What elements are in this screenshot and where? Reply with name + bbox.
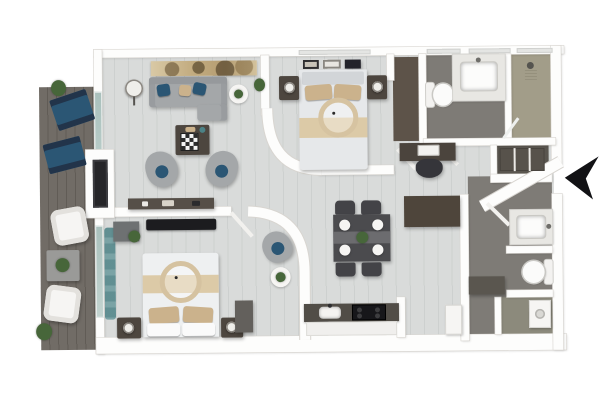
chessboard-icon <box>181 134 197 150</box>
entry-storage-closet <box>469 276 505 294</box>
balcony-armchair-2 <box>43 284 82 324</box>
balcony-table-plant-icon <box>55 258 69 272</box>
dining-centerpiece-plant-icon <box>356 231 368 243</box>
panoramic-wall-art <box>151 60 257 76</box>
plate-icon <box>372 244 383 255</box>
closet2-shelving-unit <box>500 148 545 171</box>
side-table-plant-icon <box>234 89 243 98</box>
bedroom2-nightstand-left <box>117 317 141 338</box>
bedroom2-dresser-left <box>113 221 139 241</box>
master-bed-headboard-pillows <box>302 71 364 85</box>
bath2-faucet-icon <box>546 224 551 229</box>
entry-direction-arrow-icon <box>565 156 599 199</box>
sofa-pillow-navy-right <box>192 82 207 96</box>
floorplan-canvas <box>0 0 600 400</box>
burner-icon <box>375 313 380 318</box>
master-pillow-tan-left <box>305 84 333 101</box>
entry-door-leaf <box>487 203 509 225</box>
bath2-vanity <box>510 210 552 244</box>
laptop-icon <box>418 145 440 156</box>
sofa-pillow-tan <box>179 85 192 97</box>
balcony-coffee-table <box>46 250 79 281</box>
console-decor-white <box>142 201 148 206</box>
bedroom2-bed <box>142 253 219 338</box>
living-side-table <box>229 84 248 103</box>
cooktop <box>353 305 385 319</box>
bath1-toilet-bowl <box>433 84 453 106</box>
bed2-ring-decor-icon <box>160 261 202 303</box>
bath2-toilet-bowl <box>523 261 545 283</box>
swivel-chair-left-pillow <box>154 164 170 180</box>
pantry-cabinet <box>404 196 460 227</box>
shelf-divider <box>514 148 516 171</box>
plate-icon <box>372 219 383 230</box>
master-nightstand-right <box>367 75 387 99</box>
dining-table <box>333 214 390 261</box>
reading-chair-pillow <box>269 240 287 258</box>
master-frame-3 <box>345 59 361 68</box>
coffee-table-decor-teal <box>199 127 205 133</box>
bedroom2-dresser-right <box>235 300 253 332</box>
washer <box>529 300 551 328</box>
kitchen-sink <box>319 307 341 319</box>
swivel-chair-right-pillow <box>214 163 230 179</box>
plate-icon <box>339 245 350 256</box>
bedroom2-round-table <box>271 267 291 287</box>
arc-floor-lamp-shade-icon <box>125 79 143 97</box>
dresser-plant-icon <box>128 230 140 242</box>
refrigerator <box>445 305 462 335</box>
washer-door-icon <box>535 309 545 319</box>
bedroom2-tv-icon <box>146 219 216 231</box>
balcony-plant-bottom-icon <box>36 323 52 340</box>
media-console <box>128 198 214 210</box>
living-tv-icon <box>93 160 108 208</box>
plate-icon <box>339 220 350 231</box>
bath1-faucet-icon <box>476 57 481 62</box>
kitchen-faucet-icon <box>328 304 332 308</box>
nightstand-lamp-icon <box>284 82 295 93</box>
dining-chair-top-right <box>361 200 381 214</box>
coffee-table <box>175 125 209 155</box>
master-ring-center-dot <box>332 112 335 115</box>
balcony-armchair-1 <box>49 205 90 247</box>
shower-head-icon <box>527 62 534 69</box>
round-table-plant-icon <box>276 272 286 282</box>
bed2-pillow-tan-left <box>148 306 179 324</box>
master-nightstand-left <box>279 76 299 100</box>
burner-icon <box>357 313 362 318</box>
floor-lamp-stem <box>133 96 135 105</box>
bath2-sink <box>517 216 545 238</box>
bed2-pillow-white-right <box>182 323 215 336</box>
sofa-pillow-navy-left <box>156 83 171 97</box>
dining-chair-bottom-left <box>336 263 356 277</box>
floorplan <box>0 0 600 400</box>
balcony-plant-top-icon <box>51 80 66 96</box>
master-ring-decor-icon <box>318 97 358 137</box>
master-bed <box>299 69 368 170</box>
dining-chair-bottom-right <box>362 262 382 276</box>
nightstand-lamp-icon <box>123 322 134 333</box>
burner-icon <box>375 307 380 312</box>
coffee-table-decor-tan <box>185 127 195 132</box>
dining-chair-top-left <box>335 201 355 215</box>
bath1-sink <box>461 62 497 90</box>
shelf-divider <box>529 148 531 171</box>
kitchen-counter <box>304 303 399 322</box>
walls-and-arrow-overlay <box>0 0 600 400</box>
bed2-pillow-white-left <box>147 323 180 336</box>
bed2-ring-center-dot <box>175 276 178 279</box>
nightstand-lamp-icon <box>372 81 383 92</box>
kitchen-base-cabinets <box>306 321 397 336</box>
console-decor-dark <box>192 201 200 206</box>
living-wall-plant-icon <box>254 78 265 91</box>
sofa-chaise <box>197 105 227 121</box>
burner-icon <box>357 307 362 312</box>
bath1-vanity <box>453 54 505 100</box>
bed2-pillow-tan-right <box>183 306 214 324</box>
console-decor-frame <box>162 200 174 206</box>
shower-glass-door <box>503 118 518 138</box>
master-frame-1 <box>303 60 319 69</box>
master-frame-2 <box>323 60 341 69</box>
bath2-toilet-tank <box>545 260 553 284</box>
shower-spray-lines <box>525 70 537 80</box>
